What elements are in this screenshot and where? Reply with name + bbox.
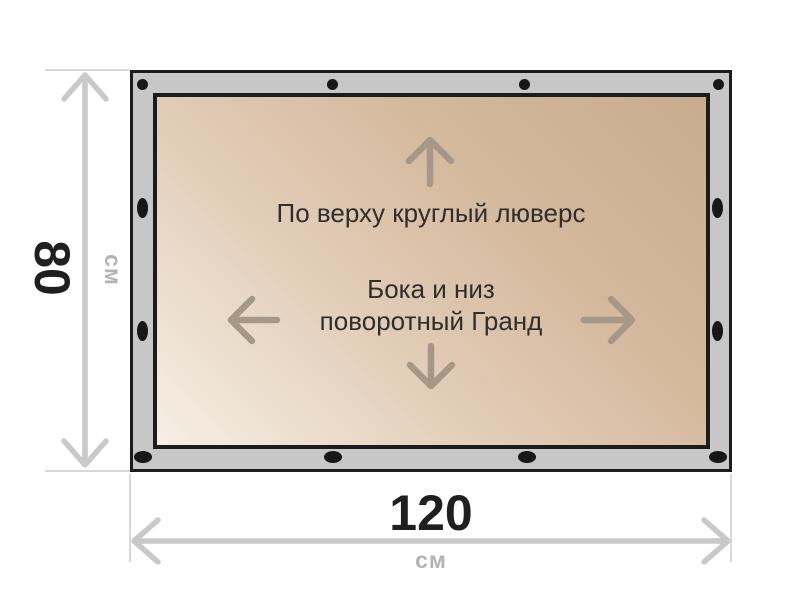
banner-center-label-line2: поворотный Гранд (130, 305, 732, 337)
banner-canvas (153, 93, 710, 449)
grommet-bottom-1-icon (134, 451, 152, 463)
width-dimension-unit: см (130, 547, 732, 573)
banner-center-label-line1: Бока и низ (130, 273, 732, 305)
grommet-top-3-icon (519, 79, 530, 90)
grommet-bottom-2-icon (324, 451, 342, 463)
banner-top-label: По верху круглый люверс (130, 197, 732, 229)
grommet-top-1-icon (137, 79, 148, 90)
grommet-top-4-icon (713, 79, 724, 90)
grommet-top-2-icon (327, 79, 338, 90)
grommet-bottom-4-icon (709, 451, 727, 463)
grommet-bottom-3-icon (518, 451, 536, 463)
width-dimension-value: 120 (130, 488, 732, 538)
height-dimension-value: 80 (27, 208, 77, 328)
height-dimension-unit: см (100, 230, 126, 310)
